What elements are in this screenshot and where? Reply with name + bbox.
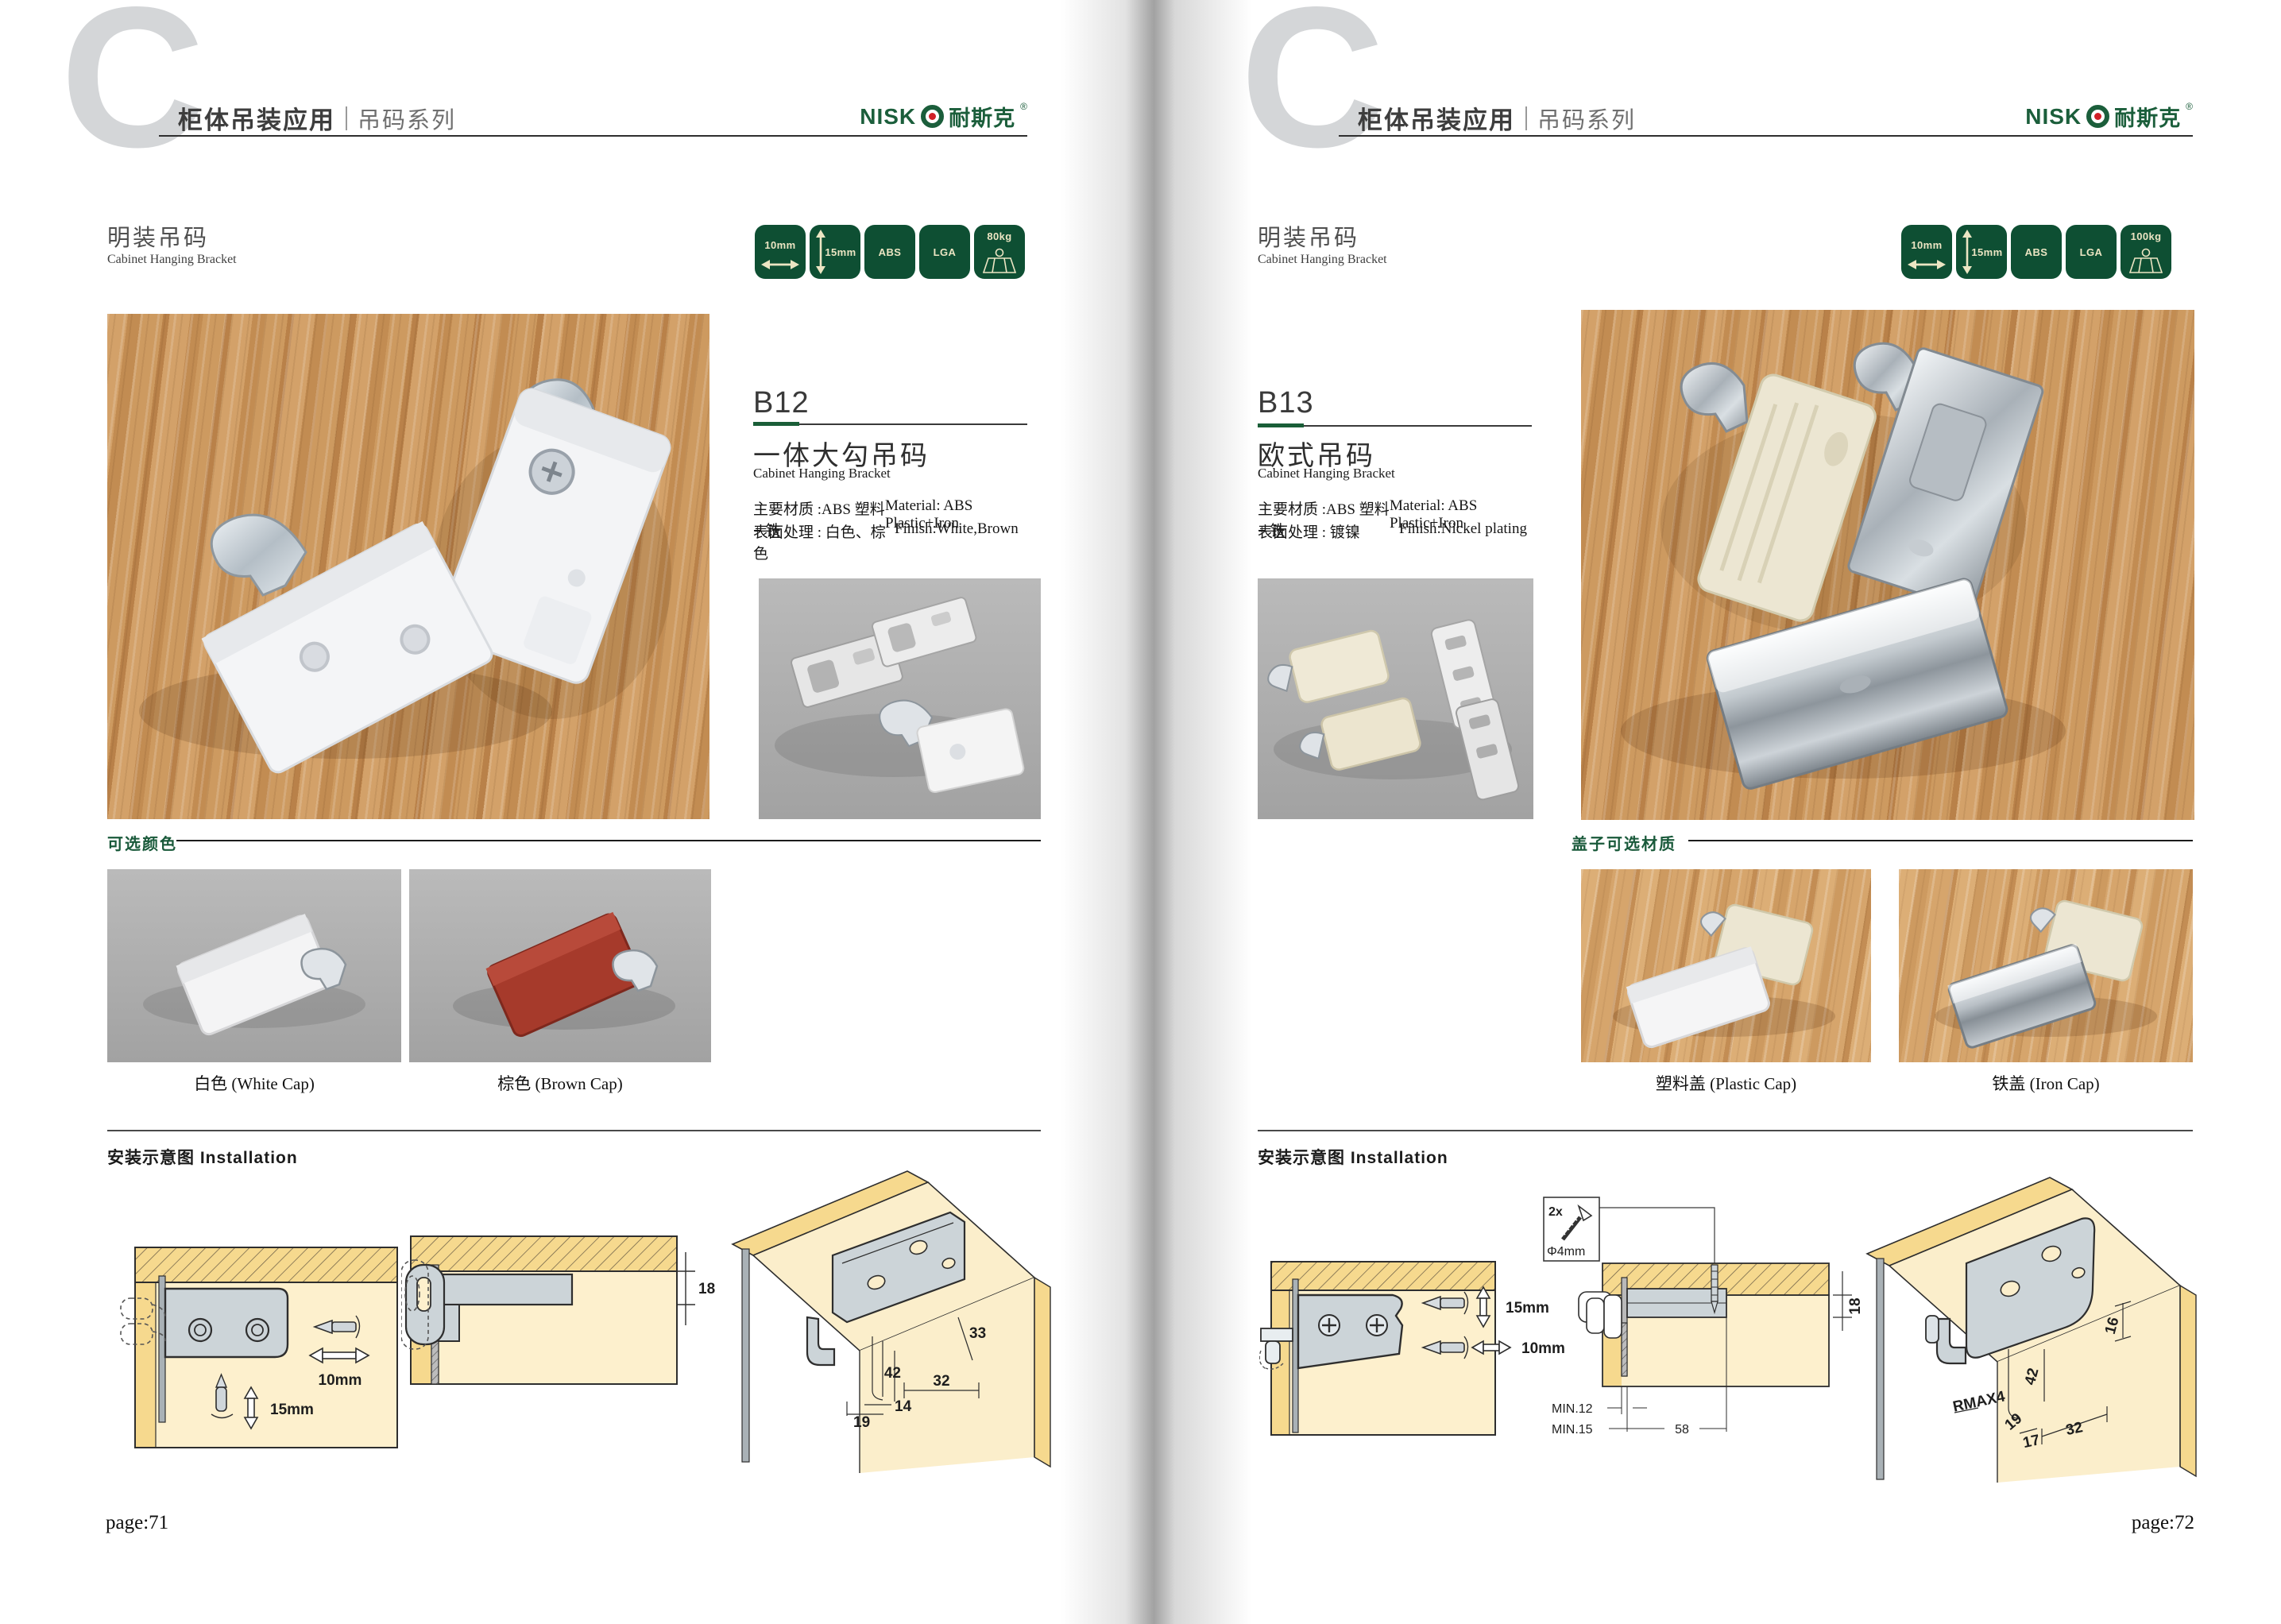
logo-registered-mark: ® [1020,101,1027,112]
badge-label: 15mm [821,246,860,258]
badge-label: 80kg [974,230,1025,242]
screw-through-panel [1711,1265,1718,1313]
plastic-hanger [1262,629,1390,710]
brand-logo: NISK 耐斯克 ® [860,101,1027,132]
load-capacity-icon [982,247,1017,274]
chapter-letter: C [1240,0,1380,178]
option-photo-white-art [107,869,401,1062]
load-capacity-icon [2128,247,2163,274]
option-photo-brown-art [409,869,711,1062]
dim-label: 14 [895,1398,912,1415]
screw-dia-label: Φ4mm [1547,1245,1585,1259]
section-title-cn: 明装吊码 [107,219,209,253]
header-title-cn: 柜体吊装应用 [178,100,335,136]
min-offset-label: MIN.15 [1552,1423,1593,1436]
page-number: page:71 [106,1512,168,1534]
wall-rail [1877,1259,1884,1479]
chapter-letter: C [60,0,200,178]
dim-label: 33 [969,1325,986,1342]
dim-label: 42 [884,1365,901,1382]
installation-diagram-3d: 33 42 32 14 19 [713,1162,1055,1479]
spec-finish: 表面处理 : 镀镍 Finish:Nickel plating [1258,520,1544,542]
header-rule [1339,135,2193,137]
catalog-spread: C 柜体吊装应用 吊码系列 NISK 耐斯克 ® 明装吊码 Cabinet Ha… [0,0,2281,1624]
dim-label: 10mm [319,1372,362,1389]
options-rule [176,840,1041,841]
spec-finish-cn: 表面处理 : 白色、棕色 [753,520,895,563]
badge-load: 100kg [2121,225,2171,279]
badge-label: 10mm [755,239,806,251]
option-caption: 棕色 (Brown Cap) [409,1071,711,1095]
options-heading: 可选颜色 [107,831,177,854]
logo-red-dot [2094,113,2101,120]
option-caption: 白色 (White Cap) [107,1071,401,1095]
dim-label: 17 [2021,1432,2041,1452]
installation-heading: 安装示意图 Installation [1258,1145,1448,1169]
header-title-cn: 柜体吊装应用 [1358,100,1515,136]
badge-load: 80kg [974,225,1025,279]
option-photo-iron-cap-art [1899,869,2193,1062]
badge-material: ABS [864,225,915,279]
installation-diagram-3d: 16 42 RMAX4 19 17 32 [1843,1160,2201,1486]
dim-label: 19 [853,1414,870,1431]
screw-spec-box: 2x Φ4mm [1544,1197,1599,1261]
badge-width: 10mm [1901,225,1952,279]
header-rule [159,135,1027,137]
dim-label: 18 [698,1281,715,1297]
metal-clip [1681,363,1747,431]
options-rule [1688,840,2193,841]
product-photo-b13-art [1581,310,2194,820]
phillips-screw [1367,1315,1387,1336]
badge-label: ABS [864,246,915,258]
badge-label: LGA [919,246,970,258]
book-spine [1061,0,1251,1624]
min-offset-label: MIN.12 [1552,1402,1593,1416]
width-arrow-icon [1908,258,1946,271]
dim-label: 32 [2064,1419,2084,1439]
product-code-rule [753,423,1027,425]
product-code: B13 [1258,386,1314,420]
badge-lga: LGA [2066,225,2117,279]
spec-finish-en: Finish:White,Brown [895,520,1019,563]
badge-label: 15mm [1967,246,2007,258]
spec-finish: 表面处理 : 白色、棕色 Finish:White,Brown [753,520,1039,563]
logo-latin-text: NISK [860,104,916,130]
installation-rule [1258,1130,2193,1131]
product-code-rule [1258,425,1532,427]
installation-diagram-section: 2x Φ4mm 18 [1537,1176,1895,1502]
header-series-cn: 吊码系列 [358,102,456,135]
installation-diagram-section: 18 [401,1230,715,1417]
badge-material: ABS [2011,225,2062,279]
option-photo-plastic-cap-art [1581,869,1871,1062]
logo-red-dot [929,113,936,120]
logo-latin-text: NISK [2025,104,2082,130]
product-photo-b13-parts [1258,578,1533,819]
logo-registered-mark: ® [2186,101,2193,112]
options-heading: 盖子可选材质 [1572,831,1676,854]
dim-label: 15mm [270,1402,314,1418]
mounting-rail [1455,698,1519,800]
spec-finish-cn: 表面处理 : 镀镍 [1258,520,1399,542]
option-photo-iron-cap [1899,869,2193,1062]
installation-rule [107,1130,1041,1131]
badge-lga: LGA [919,225,970,279]
page-number: page:72 [2132,1512,2194,1534]
bracket-arm [439,1274,572,1305]
product-photo-b12-main [107,314,709,819]
option-photo-plastic-cap [1581,869,1871,1062]
logo-o-icon [921,105,944,128]
option-photo-white [107,869,401,1062]
wall-rail [742,1249,749,1462]
badge-height: 15mm [810,225,860,279]
header-title-divider [346,106,347,130]
screw-qty-label: 2x [1548,1205,1563,1219]
spec-finish-en: Finish:Nickel plating [1399,520,1527,542]
metal-plate [872,597,977,667]
header-title-divider [1525,106,1527,130]
logo-cjk-text: 耐斯克 [2114,101,2181,132]
logo-cjk-text: 耐斯克 [949,101,1015,132]
phillips-screw [1319,1315,1340,1336]
option-caption: 塑料盖 (Plastic Cap) [1581,1071,1871,1095]
option-photo-brown [409,869,711,1062]
option-caption: 铁盖 (Iron Cap) [1899,1071,2193,1095]
dim-label: 32 [933,1373,949,1390]
header-series-cn: 吊码系列 [1537,102,1636,135]
span-label: 58 [1675,1423,1689,1436]
width-arrow-icon [761,258,799,271]
page-header-title: 柜体吊装应用 吊码系列 [178,100,456,136]
badge-label: ABS [2011,246,2062,258]
section-title-cn: 明装吊码 [1258,219,1359,253]
badge-label: 10mm [1901,239,1952,251]
product-photo-b13-main [1581,310,2194,820]
product-photo-b13-parts-art [1258,578,1533,819]
hook-outside-wall [1579,1292,1622,1338]
product-photo-b12-art [107,314,709,819]
section-title-en: Cabinet Hanging Bracket [1258,253,1387,267]
installation-diagram-side: 10mm 15mm [119,1232,437,1470]
badge-label: 100kg [2121,230,2171,242]
logo-o-icon [2086,105,2109,128]
badge-width: 10mm [755,225,806,279]
bracket-shape [165,1289,288,1357]
badge-label: LGA [2066,246,2117,258]
product-code: B12 [753,386,810,420]
section-title-en: Cabinet Hanging Bracket [107,253,237,267]
brand-logo: NISK 耐斯克 ® [2025,101,2193,132]
product-photo-b12-parts-art [759,578,1041,819]
metal-hook [211,515,306,595]
installation-heading: 安装示意图 Installation [107,1145,298,1169]
product-name-en: Cabinet Hanging Bracket [1258,466,1395,481]
badge-height: 15mm [1956,225,2007,279]
page-header-title: 柜体吊装应用 吊码系列 [1358,100,1636,136]
product-photo-b12-parts [759,578,1041,819]
product-name-en: Cabinet Hanging Bracket [753,466,891,481]
